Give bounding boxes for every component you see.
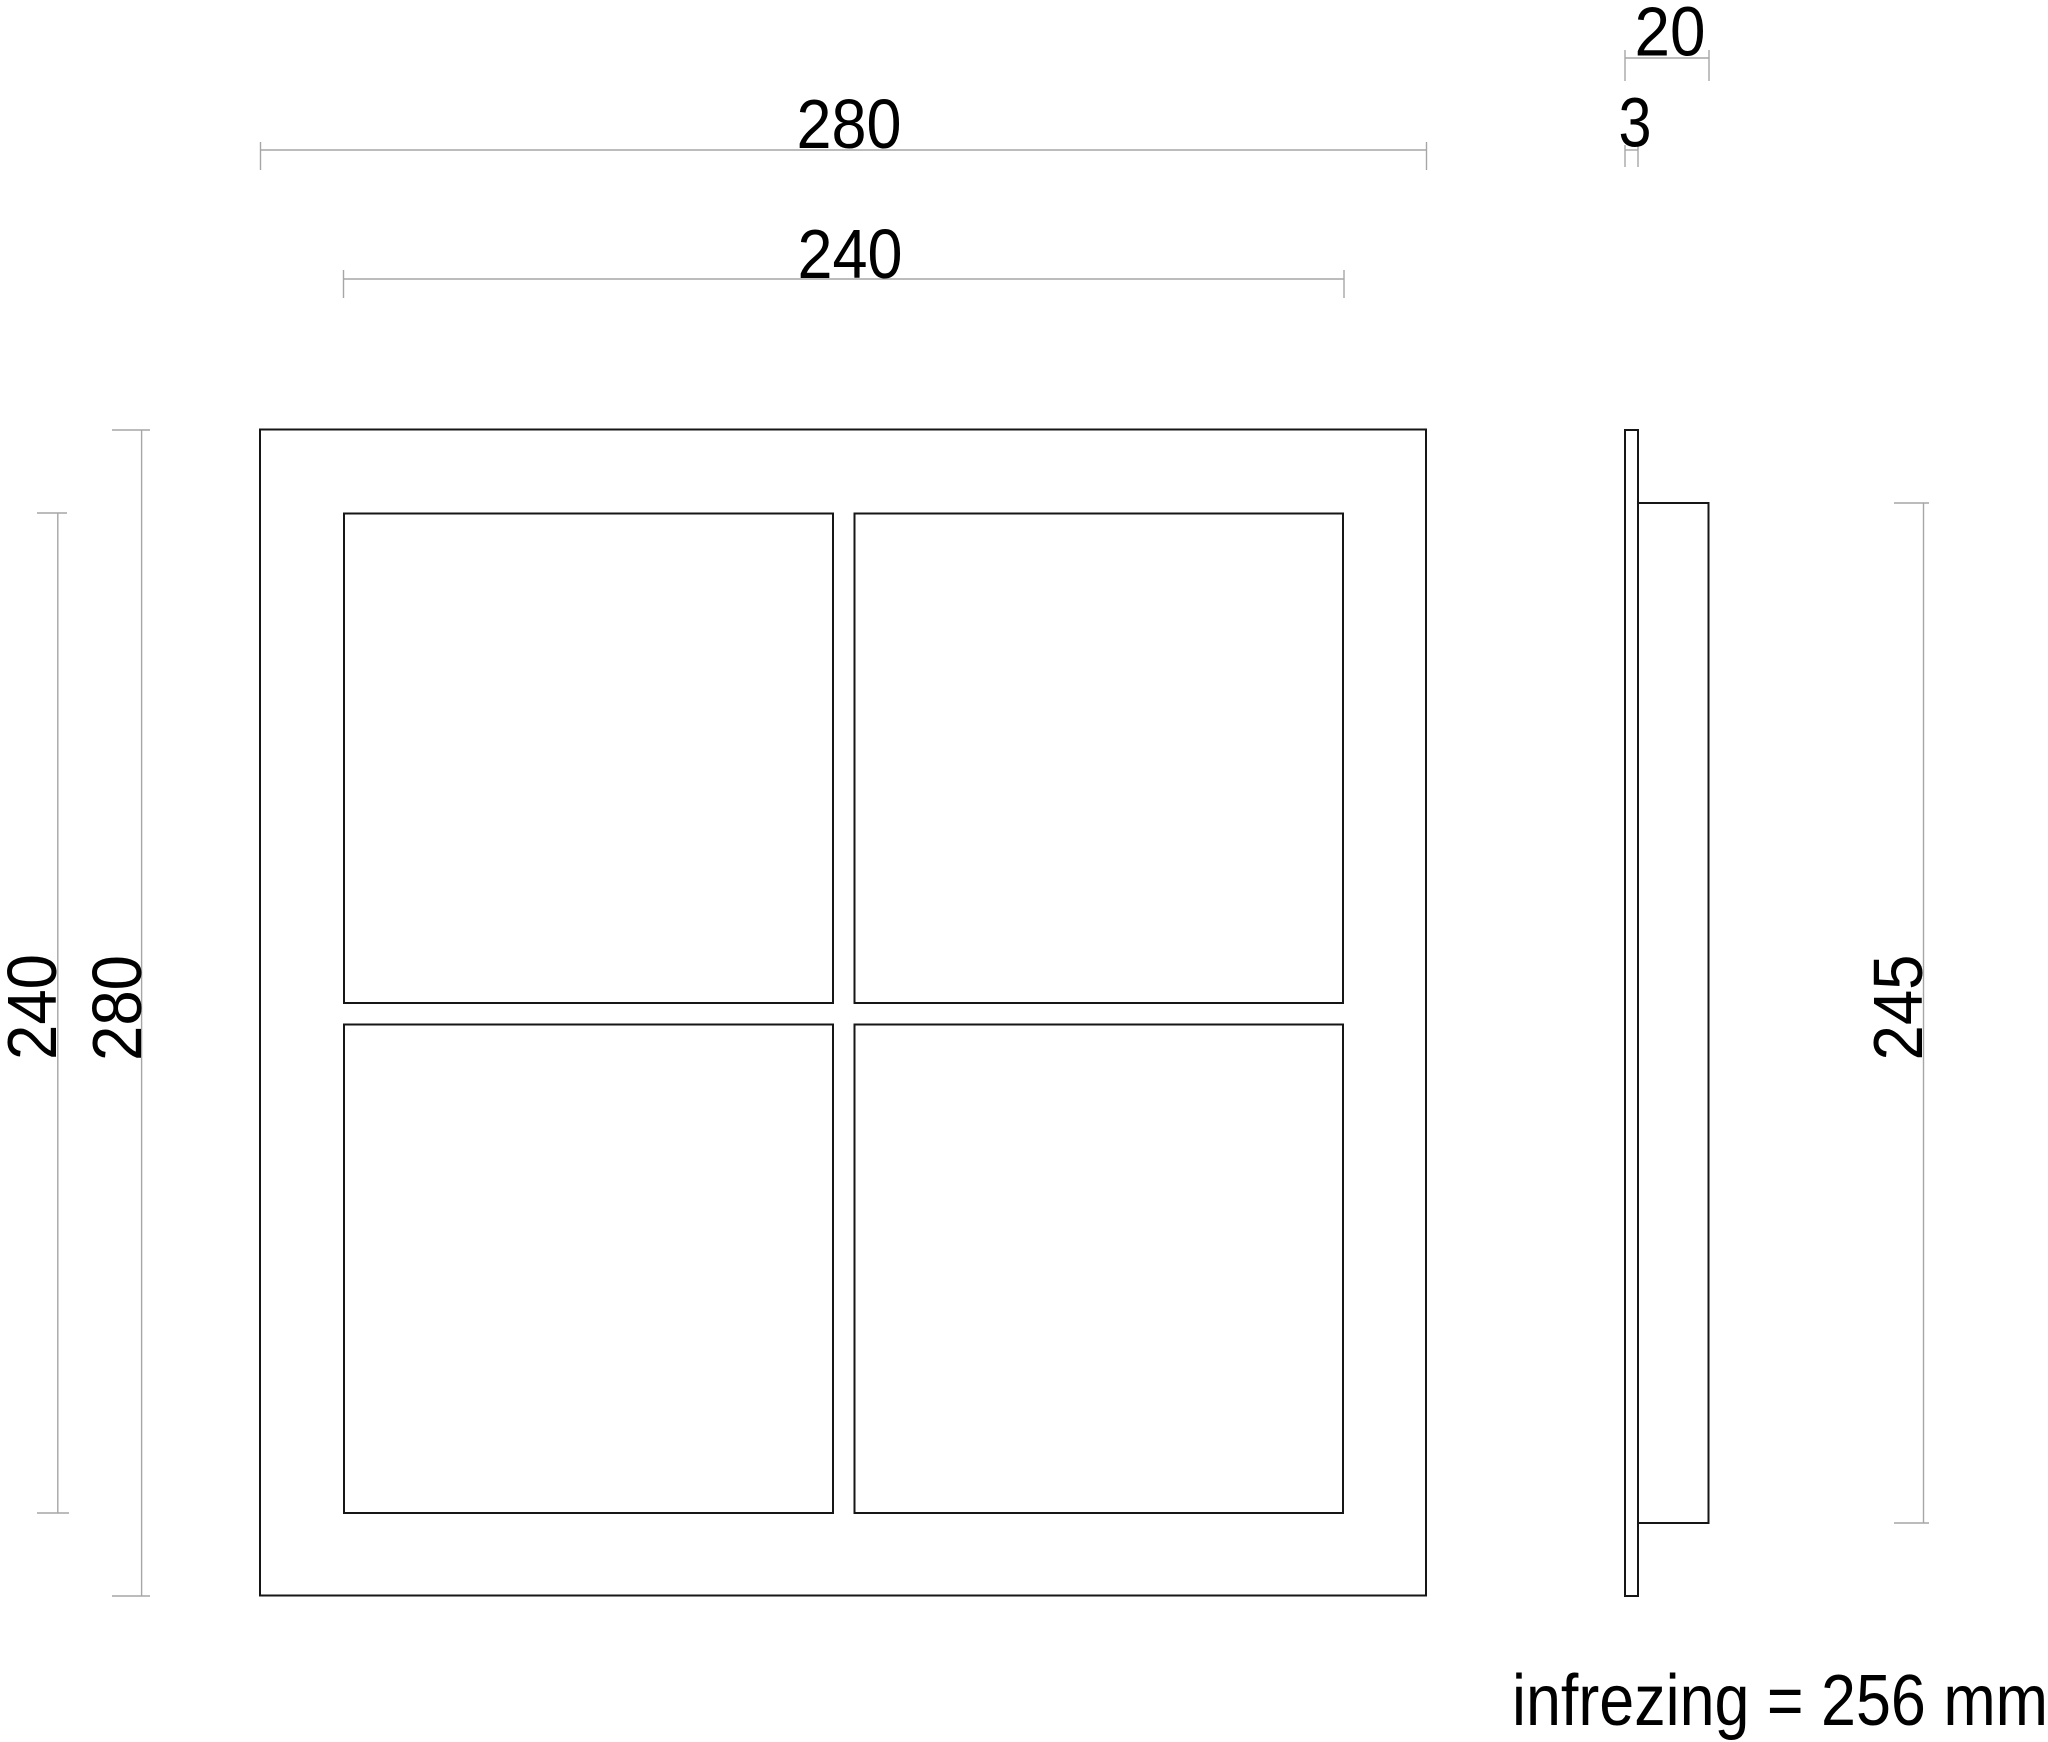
svg-text:infrezing = 256 mm: infrezing = 256 mm [1512, 1661, 2048, 1741]
svg-text:245: 245 [1859, 955, 1937, 1061]
svg-text:240: 240 [798, 215, 903, 293]
svg-text:20: 20 [1635, 0, 1706, 71]
svg-text:240: 240 [0, 954, 71, 1060]
svg-text:280: 280 [78, 955, 156, 1061]
svg-text:280: 280 [797, 85, 902, 163]
svg-text:3: 3 [1619, 84, 1652, 162]
